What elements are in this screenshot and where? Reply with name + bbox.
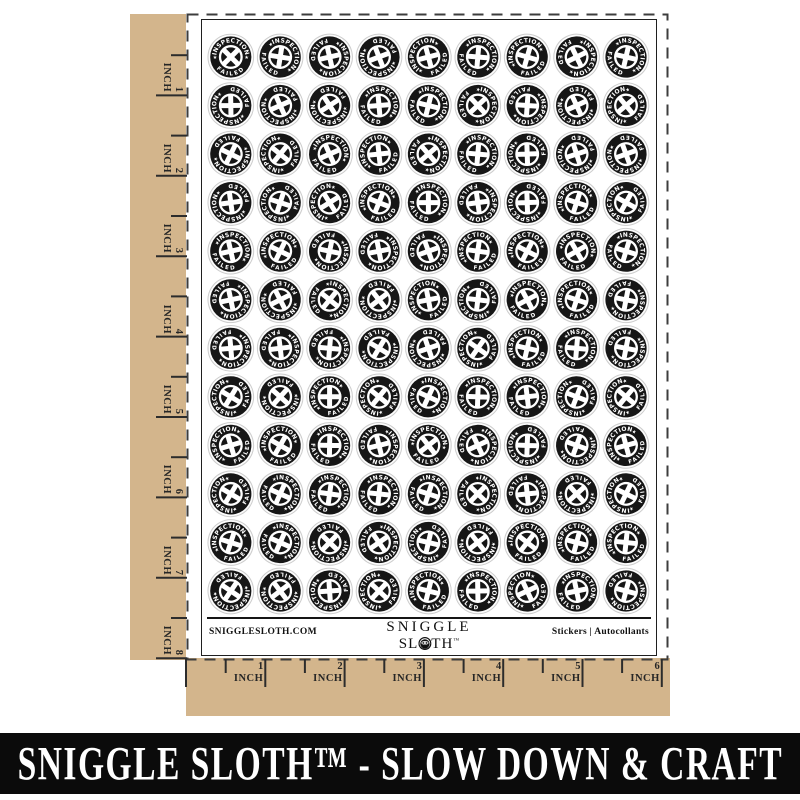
sticker: [254, 565, 306, 617]
sticker: [398, 318, 459, 379]
sticker: [548, 28, 606, 86]
sticker: [546, 172, 607, 233]
sticker: [202, 125, 260, 183]
sticker: [546, 367, 606, 427]
sticker: [248, 25, 312, 89]
sticker: [495, 122, 559, 186]
ruler-label-inch-4-left: 4INCH: [158, 298, 184, 334]
sticker: [547, 76, 605, 134]
sticker: [546, 415, 607, 476]
sticker: [446, 25, 510, 89]
sticker: [594, 317, 655, 380]
sticker: [403, 420, 454, 471]
sticker: [204, 564, 257, 617]
sticker: [496, 317, 559, 380]
sticker: [208, 34, 254, 80]
brand-logo-line1: SNIGGLE: [386, 619, 471, 636]
sticker: [251, 76, 310, 135]
sticker: [549, 223, 605, 279]
sticker: [202, 171, 263, 235]
sticker: [297, 559, 361, 623]
sticker: [305, 275, 355, 325]
sticker: [202, 512, 261, 573]
sticker: [594, 268, 655, 331]
brand-logo-line2: SLTH™: [386, 636, 471, 653]
sticker: [202, 415, 262, 477]
sticker-sheet: INSPECTION FAILED ★ ★ SNIGGLESLOTH.COM S…: [201, 19, 657, 656]
sticker: [545, 559, 608, 622]
sticker: [601, 81, 650, 130]
sticker: [353, 516, 406, 569]
sticker: [251, 271, 308, 328]
sticker: [302, 175, 357, 230]
sticker: [306, 519, 352, 565]
ruler-label-inch-3-left: 3INCH: [158, 217, 184, 253]
sticker: [545, 511, 607, 573]
sticker: [446, 171, 510, 235]
sticker: [596, 124, 655, 185]
sticker: [446, 219, 510, 283]
sticker: [498, 222, 555, 279]
sticker: [397, 26, 459, 88]
sticker: [252, 417, 308, 473]
sticker: [202, 268, 262, 331]
sticker: [398, 463, 459, 524]
sticker: [251, 222, 309, 280]
sticker: [496, 26, 558, 88]
sticker: [298, 220, 361, 283]
sticker: [502, 517, 553, 568]
sticker: [495, 413, 559, 477]
sloth-face-icon: [418, 637, 431, 650]
sticker: [446, 122, 510, 186]
sticker: [347, 462, 411, 526]
sticker: [398, 221, 459, 282]
ruler-label-inch-4-bottom: 4INCH: [457, 661, 501, 684]
sticker: [348, 414, 411, 477]
sticker: [451, 322, 504, 375]
sticker: [202, 220, 262, 283]
sticker: [397, 560, 460, 623]
sticker: [452, 517, 503, 568]
sticker: [546, 269, 607, 330]
sticker: [202, 316, 263, 380]
sticker: [495, 462, 559, 526]
sticker: [355, 567, 402, 614]
sticker: [297, 365, 361, 429]
sticker: [601, 372, 650, 421]
sticker: [347, 220, 410, 283]
sticker: [202, 73, 263, 137]
sticker: [404, 130, 453, 179]
sticker: [399, 368, 457, 426]
sticker: [397, 74, 460, 137]
sticker: [495, 73, 559, 137]
sticker: [303, 78, 357, 132]
sticker: [250, 172, 311, 233]
sticker: [449, 416, 507, 474]
ruler-label-inch-3-bottom: 3INCH: [378, 661, 422, 684]
sticker: [598, 174, 654, 230]
sticker: [349, 27, 409, 87]
sticker: [349, 173, 409, 233]
ruler-label-inch-2-left: 2INCH: [158, 137, 184, 173]
ruler-label-inch-1-bottom: 1INCH: [219, 661, 263, 684]
sticker: [251, 464, 310, 523]
sticker: [354, 274, 405, 325]
sticker: [203, 369, 258, 424]
sticker: [446, 559, 510, 623]
ruler-label-inch-7-left: 7INCH: [158, 539, 184, 575]
footer-language-label: Stickers | Autocollants: [552, 627, 649, 637]
ruler-label-inch-6-left: 6INCH: [158, 458, 184, 494]
sticker: [454, 82, 501, 129]
sticker: [297, 413, 361, 477]
trademark-symbol: ™: [453, 638, 459, 644]
ruler-label-inch-2-bottom: 2INCH: [299, 661, 343, 684]
sticker: [397, 511, 460, 574]
ruler-label-inch-6-bottom: 6INCH: [616, 661, 660, 684]
footer-website: SNIGGLESLOTH.COM: [209, 627, 317, 637]
sticker: [546, 123, 607, 184]
sticker: [347, 122, 411, 186]
brand-logo: SNIGGLE SLTH™: [386, 619, 471, 653]
sticker: [256, 373, 304, 421]
sticker: [297, 316, 361, 380]
ruler-label-inch-8-left: 8INCH: [158, 619, 184, 655]
ruler-label-inch-5-left: 5INCH: [158, 378, 184, 414]
product-image: 1INCH2INCH3INCH4INCH5INCH6INCH7INCH8INCH…: [0, 0, 800, 800]
sticker: [397, 268, 460, 331]
sticker: [495, 170, 559, 234]
sticker: [354, 372, 404, 422]
sticker: [251, 513, 310, 572]
sticker: [597, 465, 655, 523]
bottom-banner: SNIGGLE SLOTH™ - SLOW DOWN & CRAFT: [0, 733, 800, 794]
sticker: [347, 73, 411, 137]
sticker: [203, 466, 258, 521]
sticker: [594, 510, 655, 574]
sticker: [248, 316, 312, 380]
banner-slogan: SNIGGLE SLOTH™ - SLOW DOWN & CRAFT: [17, 736, 783, 791]
sticker: [351, 321, 406, 376]
sticker: [446, 365, 510, 429]
sticker-grid: INSPECTION FAILED ★ ★: [202, 20, 655, 654]
sticker: [499, 271, 556, 328]
sticker: [544, 316, 608, 380]
sticker: [553, 470, 601, 518]
sticker: [498, 562, 556, 620]
sticker: [595, 560, 655, 622]
sticker: [298, 26, 361, 89]
sticker: [495, 365, 559, 429]
sticker: [595, 26, 655, 89]
sticker: [396, 170, 460, 234]
sticker: [595, 220, 655, 282]
sticker: [455, 471, 501, 517]
sticker: [300, 125, 359, 184]
ruler-label-inch-5-bottom: 5INCH: [537, 661, 581, 684]
ruler-label-inch-1-left: 1INCH: [158, 56, 184, 92]
sticker: [298, 462, 362, 526]
sticker: [446, 268, 510, 332]
sticker: [255, 129, 305, 179]
sticker: [595, 414, 655, 476]
